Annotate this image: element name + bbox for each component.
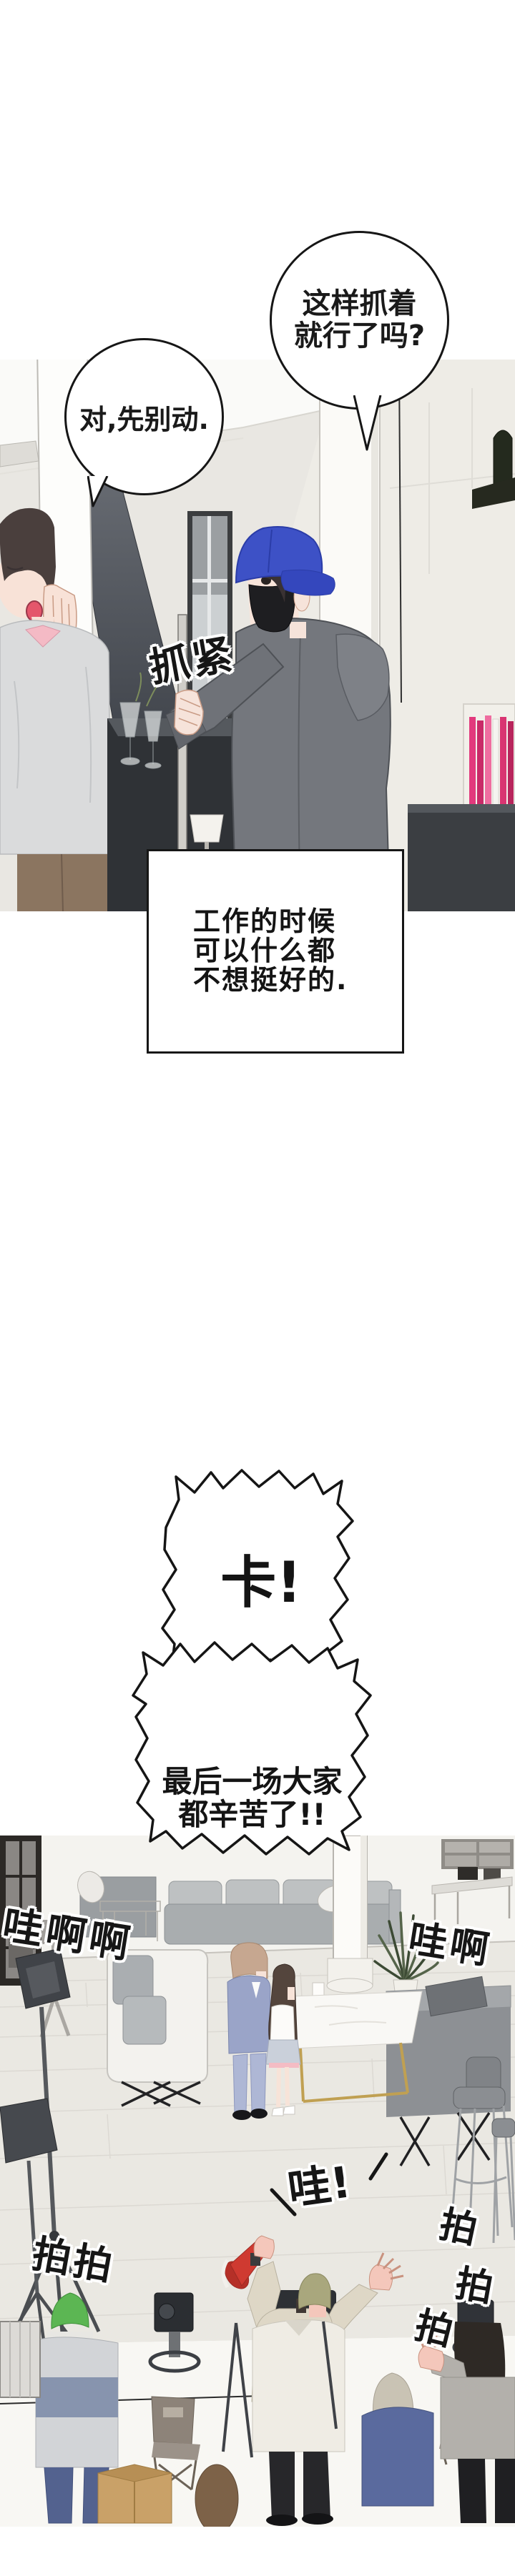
speech-bubble-left-tail (87, 476, 109, 509)
sfx-wow: 哇! (283, 2147, 354, 2217)
shout-line: 最后一场大家 (154, 1765, 350, 1798)
speech-bubble-left: 对,先别动. (64, 338, 224, 495)
speech-line: 对,先别动. (79, 397, 209, 437)
comic-page: 这样抓着 就行了吗? 对,先别动. 抓紧 工作的时候 可以什么都 不想挺好的. … (0, 0, 515, 2576)
crew-brown-head (195, 2464, 238, 2527)
shout-cut-text: 卡! (215, 1538, 308, 1618)
hand-holding-megaphone (254, 2236, 274, 2259)
grey-top (441, 2377, 515, 2459)
speech-line: 这样抓着 (294, 288, 425, 320)
pink-hem (269, 2063, 299, 2068)
skirt (266, 2040, 300, 2064)
high-heels (272, 2107, 283, 2116)
window (441, 1839, 514, 1869)
navy-jacket (362, 2407, 433, 2506)
dark-cabinet (408, 804, 515, 911)
shout-wrap-text: 最后一场大家 都辛苦了!! (154, 1765, 350, 1831)
corner-softbox (0, 2322, 40, 2397)
caption-box: 工作的时候 可以什么都 不想挺好的. (147, 849, 404, 1054)
grey-sweater (0, 620, 111, 854)
raised-open-hand (369, 2264, 392, 2290)
gripping-hand (175, 690, 203, 734)
speech-bubble-right-tail (353, 395, 382, 452)
white-top (270, 2005, 295, 2044)
shout-line: 都辛苦了!! (154, 1798, 350, 1831)
suit-jacket (227, 1976, 270, 2054)
speech-line: 就行了吗? (294, 320, 425, 352)
caption-line: 不想挺好的. (193, 966, 348, 995)
caption-line: 可以什么都 (193, 936, 348, 966)
cardboard-box (98, 2464, 172, 2523)
lounge-chair (107, 1950, 208, 2106)
caption-line: 工作的时候 (193, 907, 348, 936)
speech-bubble-right: 这样抓着 就行了吗? (270, 231, 449, 410)
